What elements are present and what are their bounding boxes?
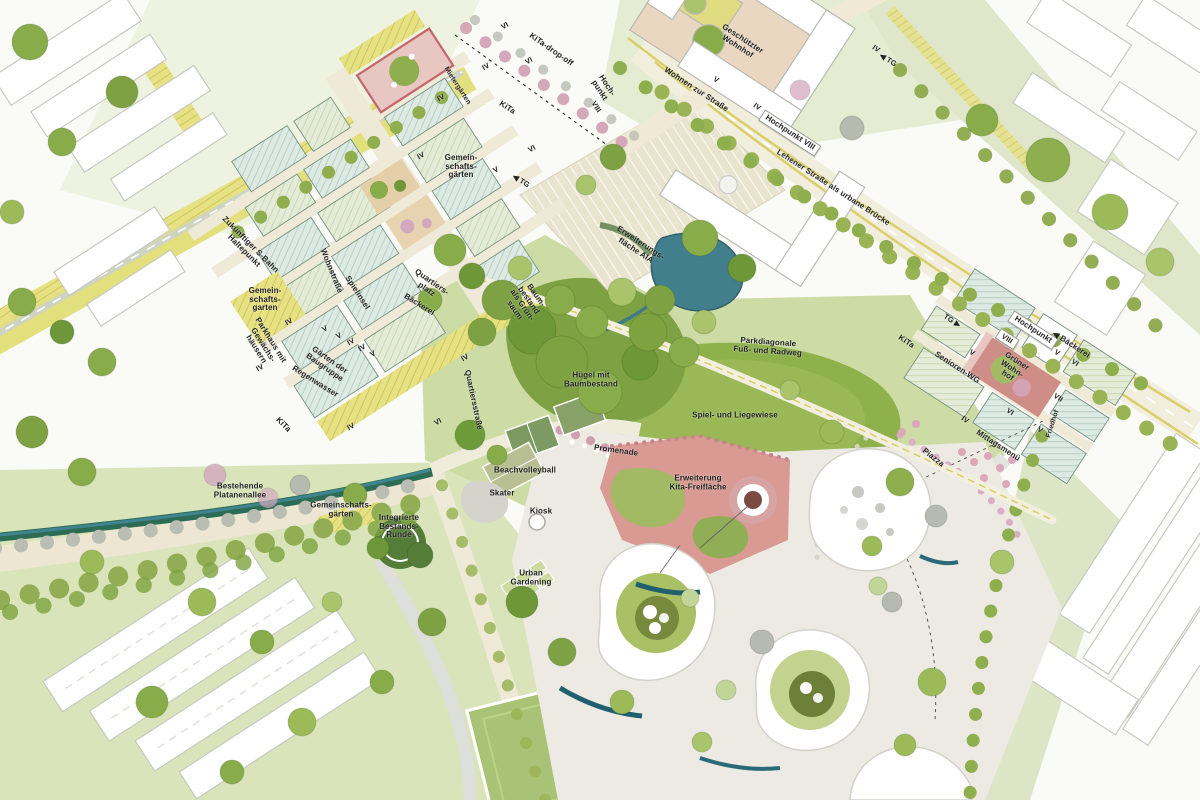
kiosk-building <box>529 514 545 530</box>
paved-park <box>512 420 1062 800</box>
site-plan-map: KiTa-drop-offMietergärtenHoch- punktVIII… <box>0 0 1200 800</box>
masterplan-drawing <box>0 0 1200 800</box>
